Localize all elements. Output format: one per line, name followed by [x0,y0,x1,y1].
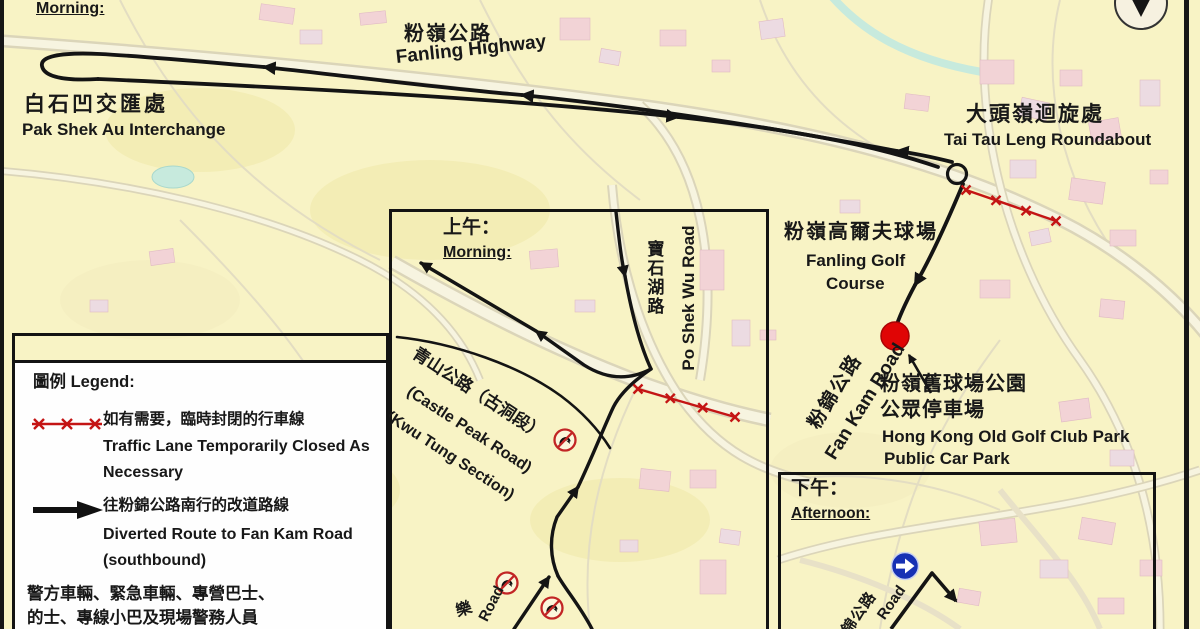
legend-item2-en1: Diverted Route to Fan Kam Road [103,526,353,543]
map-border-right [1184,0,1189,629]
legend-item2-zh: 往粉錦公路南行的改道路線 [103,498,289,515]
legend-footer-line1: 警方車輛、緊急車輛、專營巴士、 [27,586,275,604]
closed-lane-legend-icon [29,416,105,432]
tai-tau-leng-label-zh: 大頭嶺迴旋處 [966,104,1104,127]
tai-tau-leng-label-en: Tai Tau Leng Roundabout [944,131,1151,149]
po-shek-wu-label-en: Po Shek Wu Road [680,225,698,370]
traffic-diversion-map: Morning: 粉嶺公路 Fanling Highway 白石凹交匯處 Pak… [0,0,1200,629]
car-park-label-en1: Hong Kong Old Golf Club Park [882,428,1129,446]
afternoon-label-en: Afternoon: [791,506,870,523]
car-park-label-zh2: 公眾停車場 [880,400,985,422]
car-park-label-zh1: 粉嶺舊球場公園 [880,374,1027,396]
diverted-route-legend-icon [31,500,107,520]
fanling-golf-label-en1: Fanling Golf [806,252,905,270]
pak-shek-au-label-en: Pak Shek Au Interchange [22,121,225,139]
legend-item2-en2: (southbound) [103,552,206,569]
legend-item1-en2: Necessary [103,464,183,481]
legend-panel: 圖例 Legend: 如有需要，臨時封閉的行車線 Traffic Lane Te… [12,333,389,629]
inset-morning-label-en: Morning: [443,244,511,261]
fanling-golf-label-en2: Course [826,275,885,293]
legend-title: 圖例 Legend: [33,374,135,392]
legend-item1-en1: Traffic Lane Temporarily Closed As [103,438,370,455]
car-park-label-en2: Public Car Park [884,450,1010,468]
inset-morning-label-zh: 上午： [443,218,500,239]
legend-item1-zh: 如有需要，臨時封閉的行車線 [103,412,305,429]
fanling-golf-label-zh: 粉嶺高爾夫球場 [784,222,938,244]
map-border-left [0,0,4,629]
pak-shek-au-label-zh: 白石凹交匯處 [24,94,168,117]
morning-label-main: Morning: [36,0,104,17]
legend-footer-line2: 的士、專線小巴及現場警務人員 [27,610,258,628]
afternoon-label-zh: 下午： [791,479,848,500]
po-shek-wu-label-zh: 寶石湖路 [644,240,662,316]
